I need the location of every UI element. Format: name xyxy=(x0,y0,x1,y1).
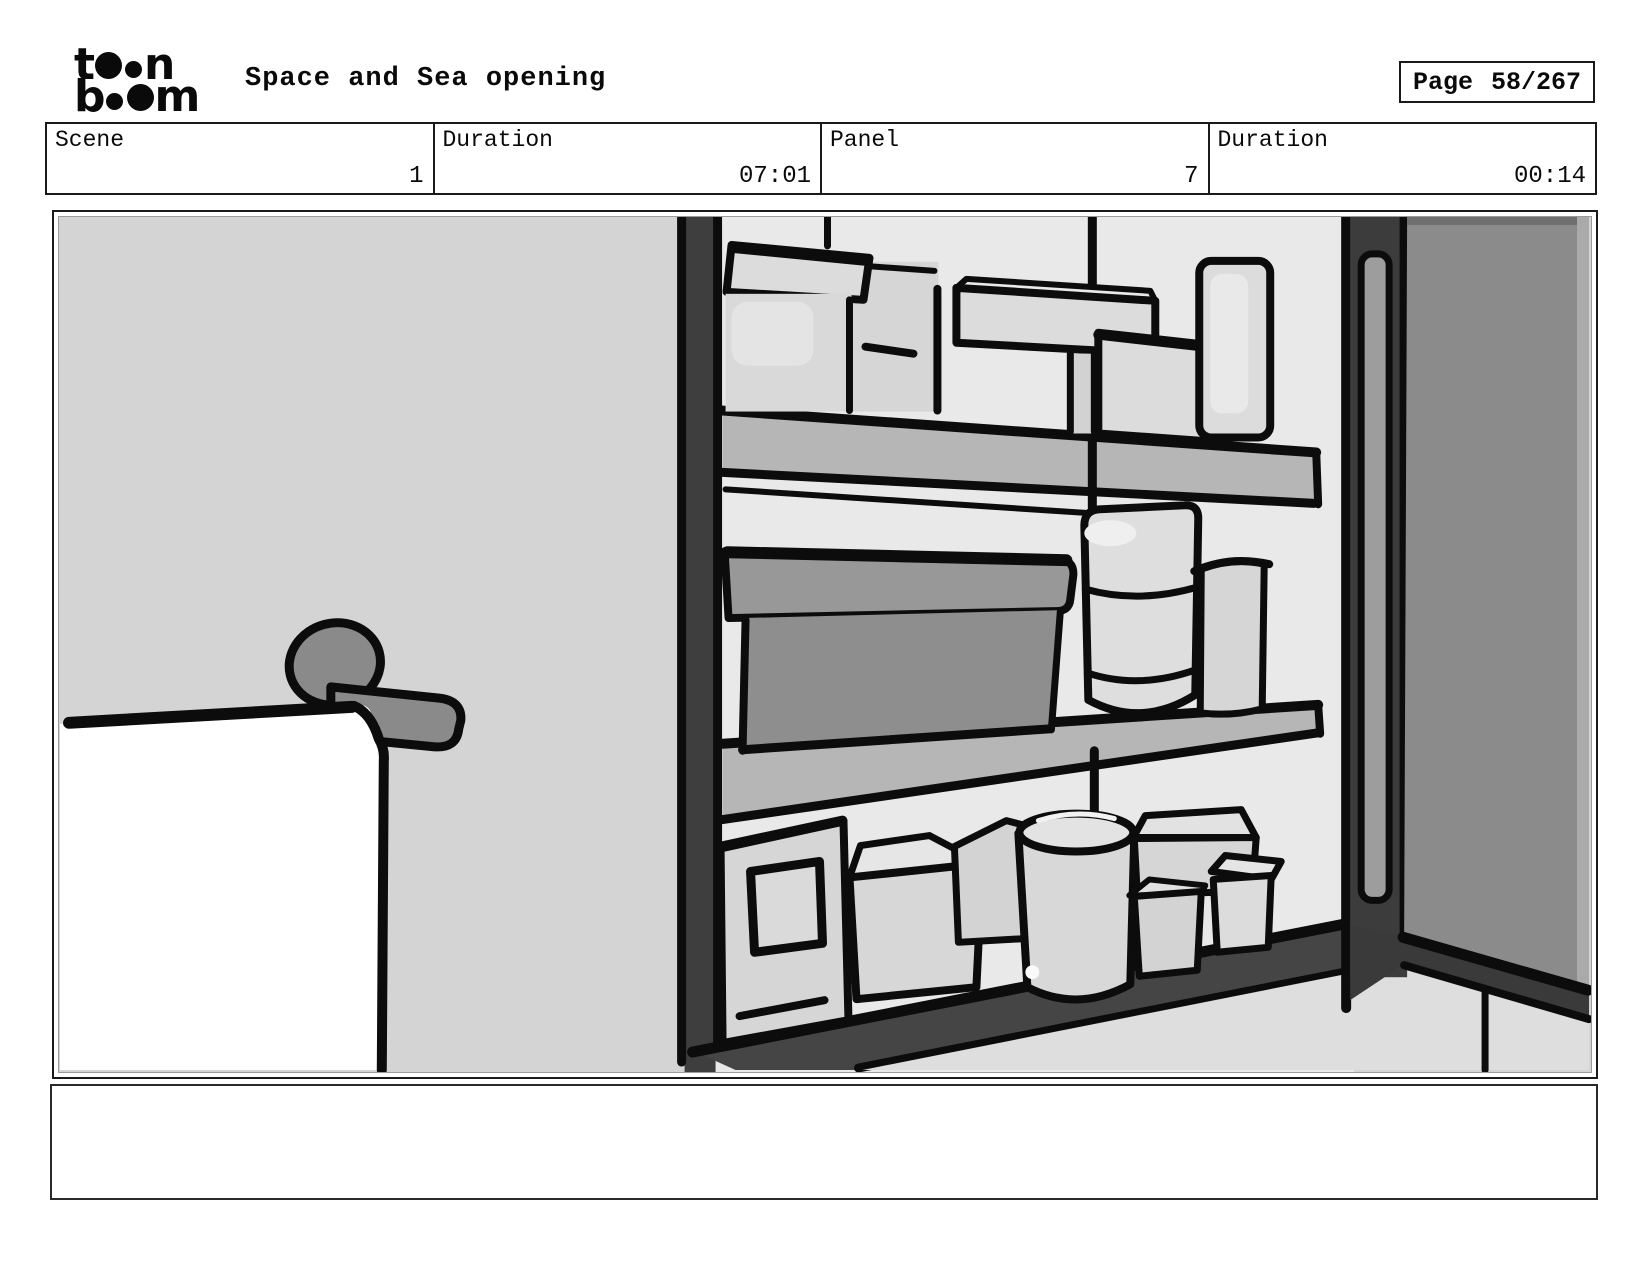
toonboom-logo: t n b m xyxy=(74,46,224,112)
cell-value: 07:01 xyxy=(739,163,811,190)
cell-label: Duration xyxy=(443,127,553,153)
door-face xyxy=(1404,217,1589,989)
cabinet-door xyxy=(1346,217,1589,1070)
project-title: Space and Sea opening xyxy=(245,64,606,94)
cell-label: Duration xyxy=(1218,127,1328,153)
cell-scene: Scene 1 xyxy=(47,124,433,193)
caption-box xyxy=(50,1084,1598,1200)
cabinet-left-frame xyxy=(682,217,718,1072)
info-row: Scene 1 Duration 07:01 Panel 7 Duration … xyxy=(45,122,1597,195)
cell-panel-duration: Duration 00:14 xyxy=(1208,124,1596,193)
page-label: Page xyxy=(1413,68,1473,97)
cell-value: 1 xyxy=(409,163,423,190)
cell-value: 00:14 xyxy=(1514,163,1586,190)
storyboard-page: t n b m Space and Sea opening Page 58/26… xyxy=(0,0,1650,1275)
page-value: 58/267 xyxy=(1491,68,1581,97)
cell-label: Scene xyxy=(55,127,124,153)
cell-label: Panel xyxy=(830,127,899,153)
logo-dot-icon xyxy=(127,84,154,111)
logo-dot-icon xyxy=(125,61,142,78)
towel xyxy=(60,705,387,1070)
cell-value: 7 xyxy=(1184,163,1198,190)
logo-dot-icon xyxy=(106,93,123,110)
logo-letter: b xyxy=(74,82,104,112)
storyboard-drawing xyxy=(58,216,1592,1073)
storyboard-panel xyxy=(52,210,1598,1079)
logo-letter: m xyxy=(155,82,199,112)
door-hinge xyxy=(1361,254,1389,900)
cell-panel: Panel 7 xyxy=(820,124,1208,193)
cell-scene-duration: Duration 07:01 xyxy=(433,124,821,193)
page-number-box: Page 58/267 xyxy=(1399,61,1595,103)
